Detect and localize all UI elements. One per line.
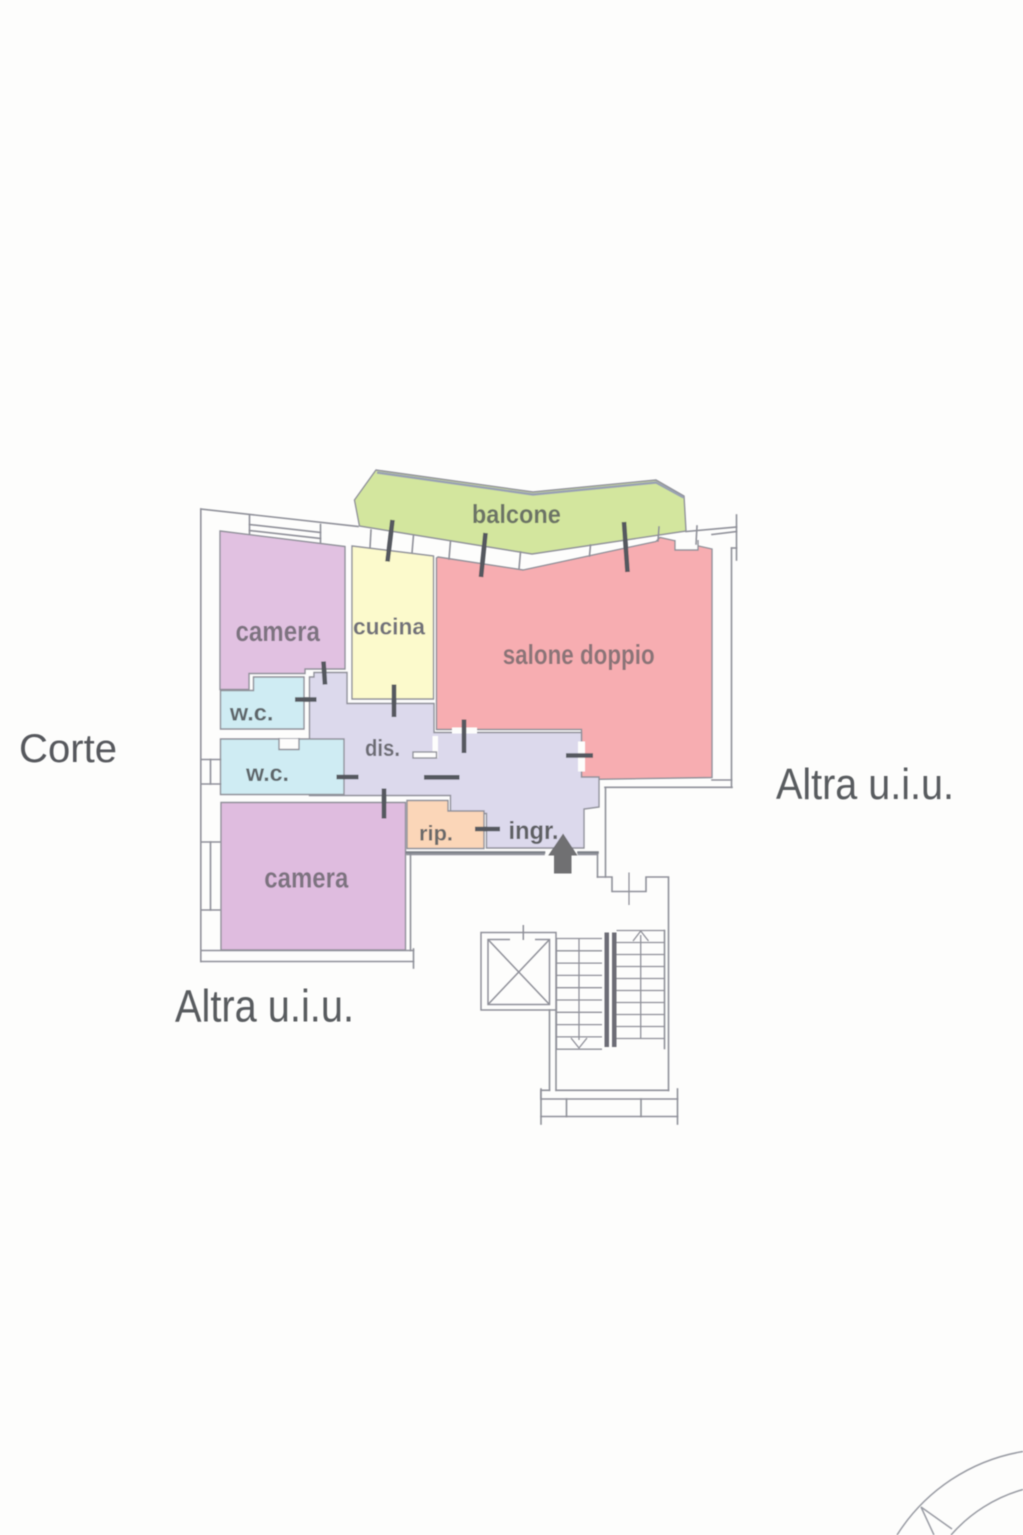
svg-text:Corte: Corte (19, 727, 117, 771)
svg-text:Altra u.i.u.: Altra u.i.u. (175, 981, 354, 1032)
svg-text:w.c.: w.c. (245, 760, 289, 786)
svg-text:cucina: cucina (353, 614, 425, 640)
svg-text:w.c.: w.c. (229, 700, 274, 726)
svg-text:camera: camera (264, 863, 349, 895)
svg-text:salone doppio: salone doppio (503, 639, 655, 670)
svg-text:rip.: rip. (419, 823, 453, 846)
svg-text:ingr.: ingr. (509, 817, 559, 845)
svg-text:balcone: balcone (472, 499, 561, 529)
svg-text:camera: camera (235, 616, 320, 648)
svg-text:dis.: dis. (365, 735, 400, 761)
svg-text:Altra u.i.u.: Altra u.i.u. (776, 760, 954, 809)
